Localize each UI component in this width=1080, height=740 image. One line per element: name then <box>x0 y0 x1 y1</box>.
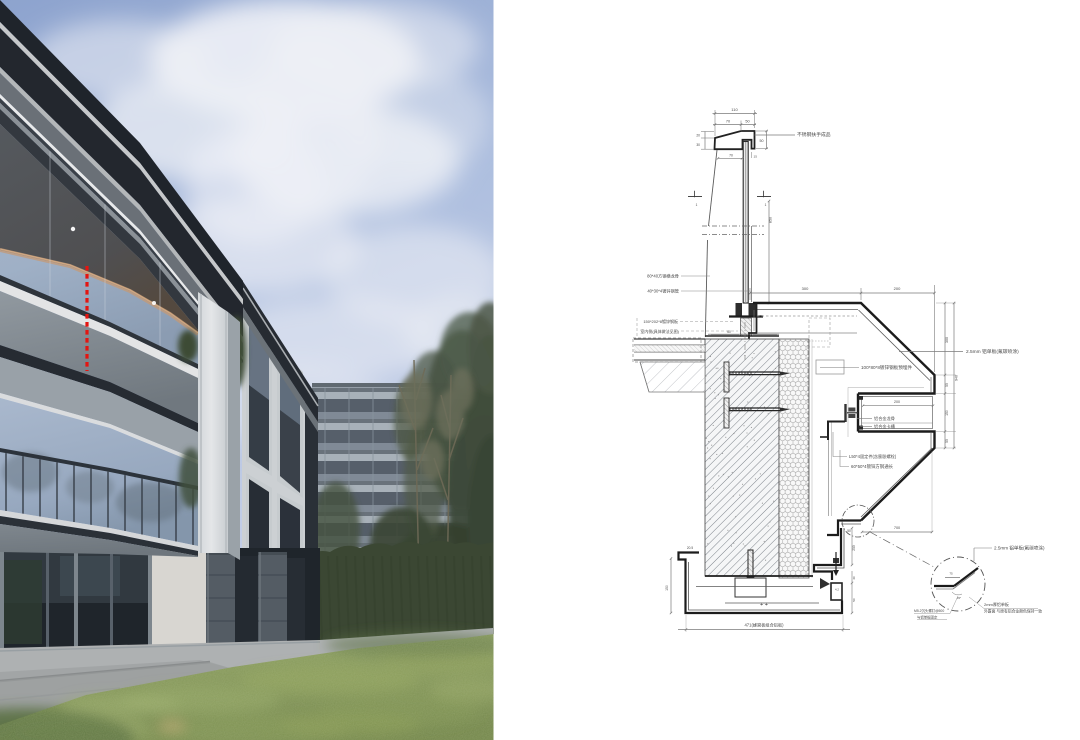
svg-text:300: 300 <box>945 337 949 343</box>
svg-text:50: 50 <box>945 439 949 443</box>
svg-text:150: 150 <box>665 585 669 591</box>
svg-text:与铝单板固定: 与铝单板固定 <box>917 615 938 620</box>
svg-text:M5.2沉头螺钉@500: M5.2沉头螺钉@500 <box>914 608 944 613</box>
svg-text:2mm厚铝单板: 2mm厚铝单板 <box>984 601 1009 607</box>
svg-text:15: 15 <box>754 155 758 159</box>
svg-text:300: 300 <box>802 286 809 291</box>
svg-text:60: 60 <box>727 330 731 334</box>
svg-text:50: 50 <box>847 529 851 533</box>
svg-text:50: 50 <box>745 119 749 123</box>
svg-text:75: 75 <box>949 572 953 576</box>
svg-text:4.2: 4.2 <box>835 588 839 592</box>
svg-text:60*50*4镀锌方钢通长: 60*50*4镀锌方钢通长 <box>851 463 894 470</box>
svg-text:200: 200 <box>894 400 900 404</box>
svg-text:471(蜂窝板组合铝板): 471(蜂窝板组合铝板) <box>744 622 784 629</box>
svg-text:40: 40 <box>852 576 856 580</box>
svg-text:700: 700 <box>894 526 900 530</box>
svg-text:150*202*8镀锌钢板: 150*202*8镀锌钢板 <box>643 318 678 324</box>
svg-text:L50*4固定件(含膨胀螺栓): L50*4固定件(含膨胀螺栓) <box>849 453 897 460</box>
svg-text:250: 250 <box>852 545 856 551</box>
svg-text:不锈钢扶手成品: 不锈钢扶手成品 <box>797 131 831 138</box>
svg-text:100*80*8镀锌钢板预埋件: 100*80*8镀锌钢板预埋件 <box>861 364 912 371</box>
svg-text:铝合金卡槽: 铝合金卡槽 <box>874 423 896 430</box>
svg-text:40*30*4镀锌钢管: 40*30*4镀锌钢管 <box>647 288 679 295</box>
svg-text:80*40方钢横龙骨: 80*40方钢横龙骨 <box>647 273 679 280</box>
svg-text:70: 70 <box>729 154 733 158</box>
svg-text:1: 1 <box>765 203 767 207</box>
svg-text:200: 200 <box>894 286 901 291</box>
svg-text:2.5mm 铝单板(氟碳喷涂): 2.5mm 铝单板(氟碳喷涂) <box>966 348 1019 355</box>
svg-text:2.5mm 铝单板(氟碳喷涂): 2.5mm 铝单板(氟碳喷涂) <box>994 545 1045 552</box>
svg-text:110: 110 <box>731 107 738 112</box>
svg-text:20: 20 <box>696 133 700 137</box>
svg-text:940: 940 <box>955 375 959 381</box>
svg-text:50: 50 <box>852 598 856 602</box>
svg-text:外露面 与原有铝合金颜色保持一致: 外露面 与原有铝合金颜色保持一致 <box>984 609 1042 614</box>
svg-text:30: 30 <box>696 143 700 147</box>
svg-text:70: 70 <box>726 119 730 123</box>
svg-text:850: 850 <box>769 217 773 223</box>
svg-text:50: 50 <box>760 139 764 143</box>
svg-text:150: 150 <box>945 410 949 416</box>
svg-text:1: 1 <box>696 203 698 207</box>
svg-text:室内侧(具体做法见图): 室内侧(具体做法见图) <box>640 328 679 334</box>
svg-text:50: 50 <box>945 383 949 387</box>
svg-text:铝合金龙骨: 铝合金龙骨 <box>874 415 895 422</box>
svg-text:20.5: 20.5 <box>687 546 693 550</box>
